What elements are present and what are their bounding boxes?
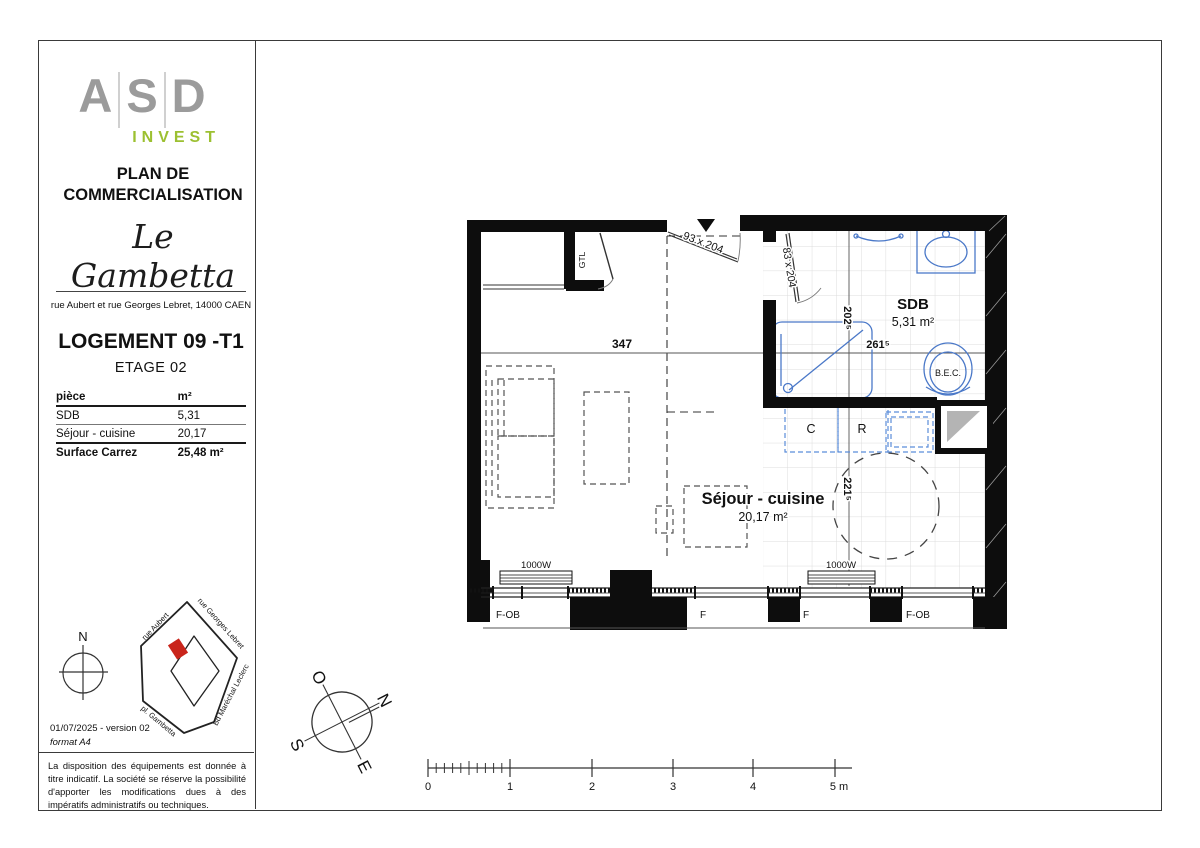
room-area: 20,17 — [178, 425, 246, 444]
dimension-label: 261⁵ — [866, 339, 890, 351]
table-row: SDB 5,31 — [56, 406, 246, 425]
street-label: Bd Maréchal Leclerc — [211, 662, 251, 727]
window-label: F — [803, 610, 809, 621]
floor-label: ETAGE 02 — [40, 360, 262, 376]
scale-bar: 0 1 2 3 4 5 m — [418, 748, 868, 800]
scale-label: 3 — [670, 781, 676, 793]
gtl-label: GTL — [577, 251, 587, 268]
compass-south: S — [286, 736, 308, 755]
total-value: 25,48 m² — [178, 443, 246, 461]
divider — [39, 752, 254, 753]
table-row: Séjour - cuisine 20,17 — [56, 425, 246, 444]
document-type-title: PLAN DE COMMERCIALISATION — [50, 164, 256, 205]
plan-sheet: A S D INVEST PLAN DE COMMERCIALISATION L… — [0, 0, 1200, 848]
radiator — [808, 571, 875, 584]
entrance-arrow-icon — [697, 219, 715, 232]
area-table-header: pièce m² — [56, 388, 246, 406]
door-size-label: 93 x 204 — [681, 230, 725, 256]
room-name: Séjour - cuisine — [56, 425, 178, 444]
radiator-label: 1000W — [521, 560, 551, 571]
low-table — [584, 392, 629, 484]
north-arrow-icon — [59, 645, 108, 700]
radiators — [500, 571, 875, 584]
divider — [56, 291, 246, 292]
table-total-row: Surface Carrez 25,48 m² — [56, 443, 246, 461]
chair — [656, 506, 673, 533]
compass-rose-icon: N S O E — [280, 648, 420, 800]
logo-separator — [164, 72, 166, 128]
compass-north: N — [373, 691, 396, 711]
window-label: F-OB — [906, 610, 930, 621]
fridge-label: R — [857, 422, 866, 436]
compass-west: O — [307, 667, 330, 687]
version-label: 01/07/2025 - version 02 — [50, 723, 150, 734]
sofa — [486, 366, 554, 508]
site-map: N rue Aubert rue Georges Lebret pl. Gamb… — [38, 590, 255, 745]
room-area: 5,31 — [178, 406, 246, 425]
furniture-outlines — [486, 366, 747, 547]
gtl-door — [600, 233, 613, 279]
room-name-sejour: Séjour - cuisine — [702, 490, 825, 508]
logo-separator — [118, 72, 120, 128]
logo-letter-a: A — [78, 72, 112, 119]
duct-shaft — [938, 403, 990, 451]
unit-location-marker — [168, 638, 188, 659]
logo-letter-d: D — [172, 72, 206, 119]
north-label: N — [78, 629, 87, 644]
zone-dashed-lines — [667, 236, 740, 556]
scale-label: 1 — [507, 781, 513, 793]
dimension-label: 202⁵ — [841, 306, 853, 330]
room-area-sdb: 5,31 m² — [892, 315, 934, 329]
room-name: SDB — [56, 406, 178, 425]
closet-shelf — [483, 285, 564, 289]
sidebar-divider — [255, 40, 256, 809]
logo-letter-s: S — [126, 72, 157, 119]
room-name-sdb: SDB — [897, 296, 929, 313]
project-address: rue Aubert et rue Georges Lebret, 14000 … — [40, 300, 262, 311]
cooker-label: C — [806, 422, 815, 436]
dimension-label: 347 — [612, 337, 632, 351]
compass-east: E — [353, 757, 375, 776]
room-area-sejour: 20,17 m² — [738, 510, 787, 524]
header-area: m² — [178, 388, 246, 406]
logo-letters: A S D — [62, 72, 222, 128]
street-label: rue Aubert — [140, 610, 171, 642]
asd-invest-logo: A S D INVEST — [62, 72, 222, 147]
radiator-label: 1000W — [826, 560, 856, 571]
radiator — [500, 571, 572, 584]
scale-label: 4 — [750, 781, 756, 793]
dimension-label: 221⁵ — [841, 477, 853, 501]
street-label: rue Georges Lebret — [196, 596, 247, 651]
disclaimer-text: La disposition des équipements est donné… — [48, 760, 246, 812]
scale-label: 2 — [589, 781, 595, 793]
scale-label: 5 m — [830, 781, 848, 793]
scale-label: 0 — [425, 781, 431, 793]
logo-subtitle: INVEST — [62, 129, 222, 147]
window-label: F — [700, 610, 706, 621]
header-room: pièce — [56, 388, 178, 406]
floor-plan: SDB 5,31 m² Séjour - cuisine 20,17 m² 34… — [460, 198, 1016, 640]
total-label: Surface Carrez — [56, 443, 178, 461]
project-name: Le Gambetta — [50, 217, 256, 295]
window-label: F-OB — [496, 610, 520, 621]
water-heater-label: B.E.C. — [935, 368, 961, 378]
unit-title: LOGEMENT 09 -T1 — [40, 330, 262, 354]
format-label: format A4 — [50, 737, 91, 748]
area-table: pièce m² SDB 5,31 Séjour - cuisine 20,17… — [56, 388, 246, 461]
